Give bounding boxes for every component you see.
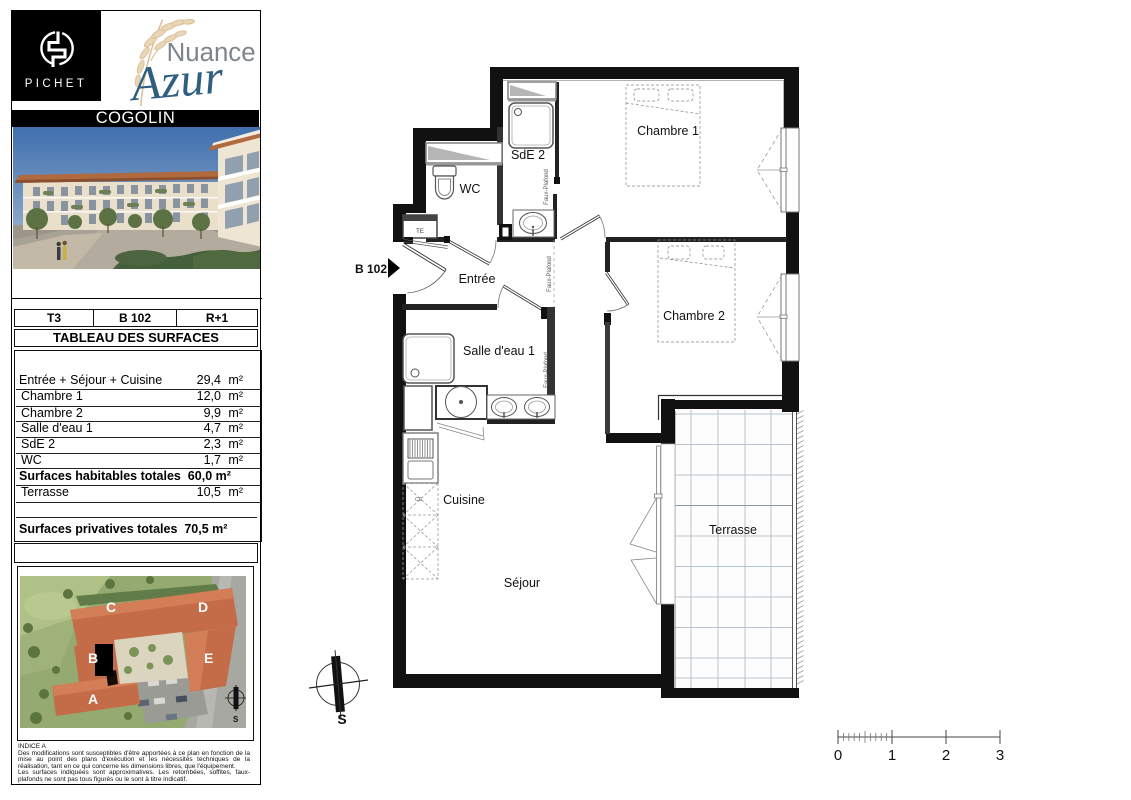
svg-text:Terrasse: Terrasse (709, 523, 757, 537)
svg-text:Chambre 2: Chambre 2 (663, 309, 725, 323)
svg-text:SdE 2: SdE 2 (511, 148, 545, 162)
svg-text:Entrée: Entrée (459, 272, 496, 286)
svg-text:Faux-Plafond: Faux-Plafond (544, 169, 550, 205)
svg-text:1: 1 (888, 747, 896, 764)
svg-text:Chambre 1: Chambre 1 (637, 124, 699, 138)
svg-text:2: 2 (942, 747, 950, 764)
svg-text:Cuisine: Cuisine (443, 493, 485, 507)
svg-text:TE: TE (416, 229, 424, 235)
svg-text:B 102: B 102 (355, 262, 387, 276)
svg-text:Faux-Plafond: Faux-Plafond (547, 256, 553, 292)
svg-text:S: S (337, 711, 346, 727)
svg-text:Séjour: Séjour (504, 576, 540, 590)
svg-text:WC: WC (460, 182, 481, 196)
svg-text:3: 3 (996, 747, 1004, 764)
svg-text:0: 0 (834, 747, 842, 764)
svg-text:Salle d'eau 1: Salle d'eau 1 (463, 344, 535, 358)
svg-text:CE: CE (415, 497, 423, 503)
svg-text:Faux-Plafond: Faux-Plafond (544, 352, 550, 388)
